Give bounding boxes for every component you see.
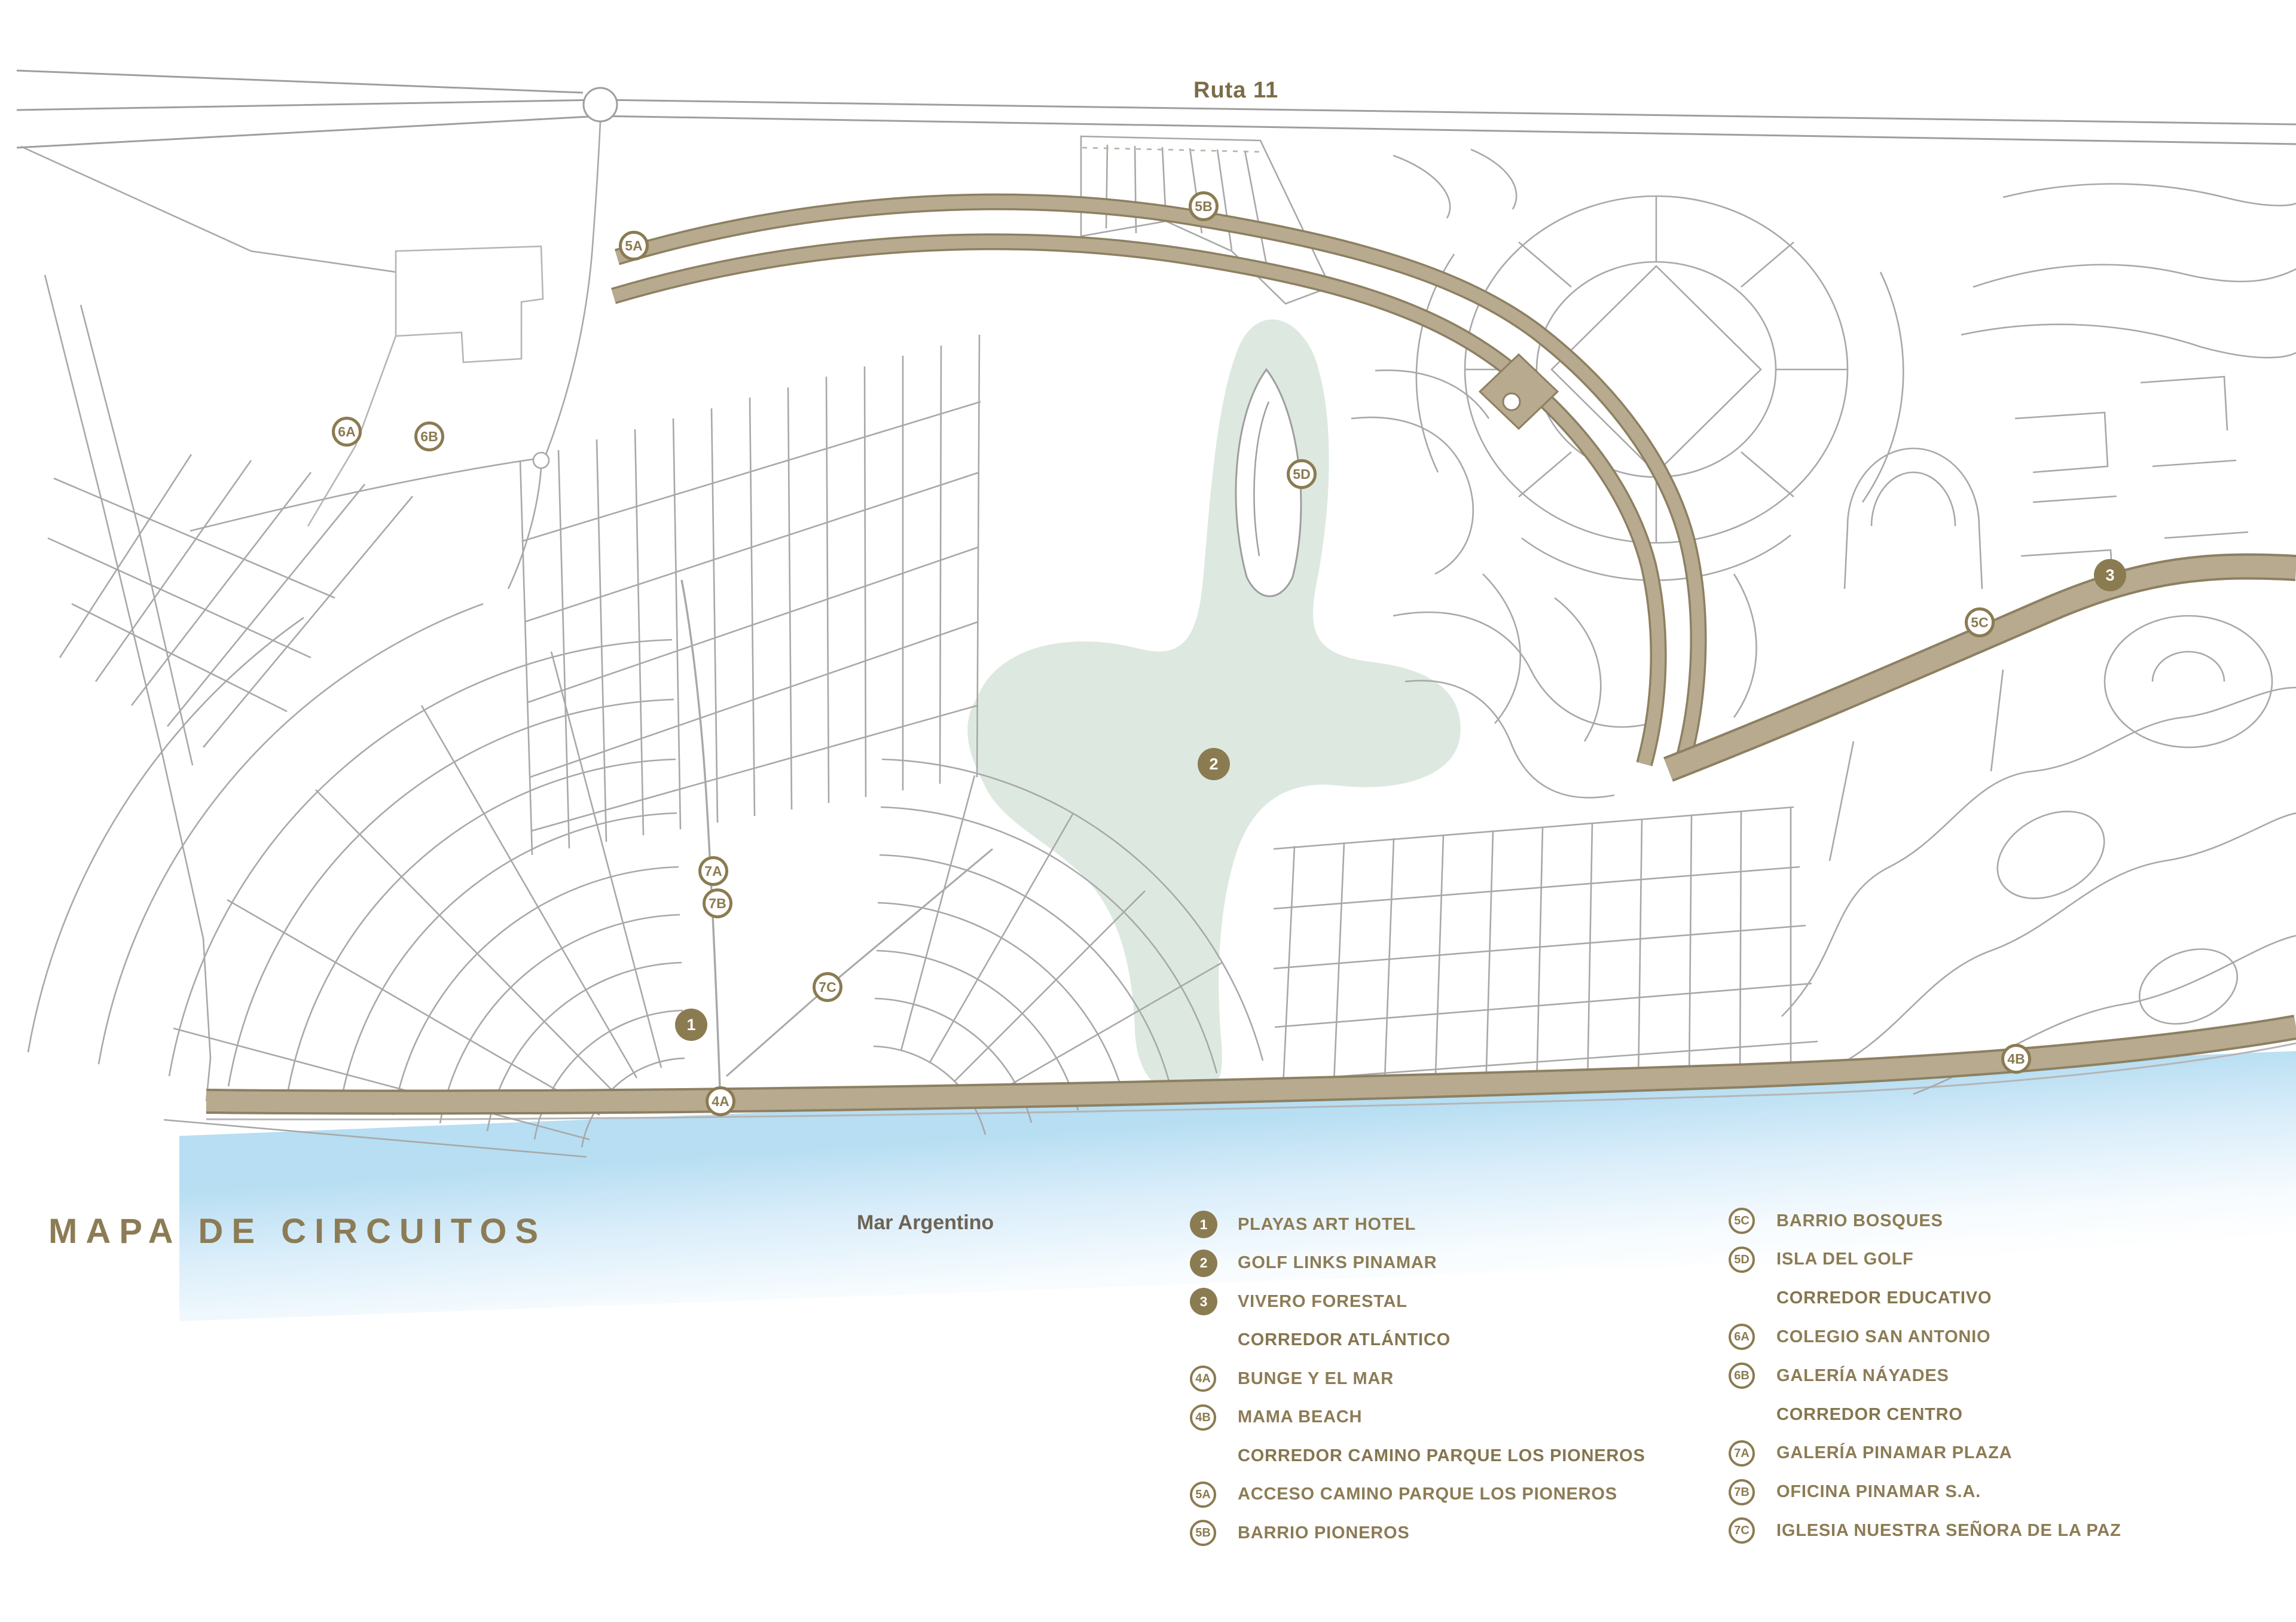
legend-item-5C: 5CBARRIO BOSQUES bbox=[1729, 1206, 1943, 1235]
legend-label: MAMA BEACH bbox=[1238, 1407, 1362, 1427]
legend-label: COLEGIO SAN ANTONIO bbox=[1776, 1327, 1990, 1347]
map-marker-7B[interactable]: 7B bbox=[703, 888, 732, 918]
legend-item-7B: 7BOFICINA PINAMAR S.A. bbox=[1729, 1478, 1981, 1507]
legend-label: VIVERO FORESTAL bbox=[1238, 1292, 1407, 1312]
legend-marker-7B: 7B bbox=[1729, 1479, 1755, 1505]
legend-label: PLAYAS ART HOTEL bbox=[1238, 1215, 1416, 1235]
legend-label: BUNGE Y EL MAR bbox=[1238, 1369, 1394, 1389]
map-marker-7C[interactable]: 7C bbox=[813, 972, 842, 1002]
legend-marker-6B: 6B bbox=[1729, 1363, 1755, 1389]
legend-label: CORREDOR ATLÁNTICO bbox=[1238, 1330, 1451, 1350]
legend-item-6A: 6ACOLEGIO SAN ANTONIO bbox=[1729, 1322, 1990, 1351]
legend-item-6B: 6BGALERÍA NÁYADES bbox=[1729, 1361, 1949, 1390]
legend-marker-1: 1 bbox=[1190, 1211, 1217, 1238]
legend-marker-7A: 7A bbox=[1729, 1440, 1755, 1467]
legend-marker-5A: 5A bbox=[1190, 1482, 1216, 1508]
legend-label: OFICINA PINAMAR S.A. bbox=[1776, 1482, 1981, 1502]
ruta-11-road bbox=[17, 71, 2296, 148]
legend-marker-7C: 7C bbox=[1729, 1517, 1755, 1544]
legend-header: CORREDOR CENTRO bbox=[1729, 1400, 1963, 1429]
legend-marker-5D: 5D bbox=[1729, 1247, 1755, 1273]
legend-item-1: 1PLAYAS ART HOTEL bbox=[1190, 1210, 1416, 1239]
map-marker-5B[interactable]: 5B bbox=[1189, 191, 1219, 221]
page-title: MAPA DE CIRCUITOS bbox=[48, 1211, 546, 1251]
legend-item-7A: 7AGALERÍA PINAMAR PLAZA bbox=[1729, 1439, 2012, 1468]
legend-item-7C: 7CIGLESIA NUESTRA SEÑORA DE LA PAZ bbox=[1729, 1516, 2121, 1545]
legend-label: BARRIO BOSQUES bbox=[1776, 1211, 1943, 1231]
map-marker-7A[interactable]: 7A bbox=[698, 856, 728, 886]
legend-header: CORREDOR ATLÁNTICO bbox=[1190, 1326, 1451, 1355]
legend-marker-5C: 5C bbox=[1729, 1208, 1755, 1234]
ruta-11-label: Ruta 11 bbox=[1193, 78, 1278, 103]
legend-header: CORREDOR EDUCATIVO bbox=[1729, 1284, 1992, 1313]
legend-item-5A: 5AACCESO CAMINO PARQUE LOS PIONEROS bbox=[1190, 1480, 1617, 1509]
legend-item-4B: 4BMAMA BEACH bbox=[1190, 1403, 1362, 1432]
legend-label: CORREDOR CAMINO PARQUE LOS PIONEROS bbox=[1238, 1446, 1645, 1466]
legend-marker-4B: 4B bbox=[1190, 1404, 1216, 1431]
legend-item-2: 2GOLF LINKS PINAMAR bbox=[1190, 1249, 1437, 1278]
legend-marker-5B: 5B bbox=[1190, 1520, 1216, 1546]
map-marker-1[interactable]: 1 bbox=[675, 1009, 707, 1041]
legend-label: GOLF LINKS PINAMAR bbox=[1238, 1253, 1437, 1273]
page: { "title": "MAPA DE CIRCUITOS", "sea_lab… bbox=[0, 0, 2296, 1622]
map-marker-5C[interactable]: 5C bbox=[1965, 607, 1995, 637]
legend-marker-6A: 6A bbox=[1729, 1324, 1755, 1350]
legend-label: GALERÍA PINAMAR PLAZA bbox=[1776, 1443, 2012, 1463]
street-map bbox=[0, 0, 2296, 1351]
map-marker-5D[interactable]: 5D bbox=[1287, 459, 1317, 489]
golf-course-area bbox=[967, 319, 1461, 1094]
legend-label: ISLA DEL GOLF bbox=[1776, 1250, 1914, 1269]
legend-item-4A: 4ABUNGE Y EL MAR bbox=[1190, 1364, 1394, 1393]
legend-label: ACCESO CAMINO PARQUE LOS PIONEROS bbox=[1238, 1484, 1617, 1504]
legend-label: GALERÍA NÁYADES bbox=[1776, 1366, 1949, 1386]
legend-marker-3: 3 bbox=[1190, 1288, 1217, 1315]
map-marker-4A[interactable]: 4A bbox=[706, 1086, 735, 1116]
sea-label: Mar Argentino bbox=[857, 1211, 994, 1235]
legend-label: BARRIO PIONEROS bbox=[1238, 1523, 1410, 1543]
legend-item-5D: 5DISLA DEL GOLF bbox=[1729, 1245, 1914, 1274]
legend-marker-2: 2 bbox=[1190, 1250, 1217, 1277]
map-marker-6A[interactable]: 6A bbox=[332, 417, 362, 447]
map-marker-2[interactable]: 2 bbox=[1198, 748, 1230, 780]
map-marker-4B[interactable]: 4B bbox=[2001, 1044, 2031, 1074]
map-marker-5A[interactable]: 5A bbox=[619, 231, 649, 261]
legend-header: CORREDOR CAMINO PARQUE LOS PIONEROS bbox=[1190, 1441, 1645, 1470]
map-canvas: Ruta 11 1234A4B5A5B5C5D6A6B7A7B7C bbox=[0, 0, 2296, 1351]
legend-label: CORREDOR CENTRO bbox=[1776, 1405, 1963, 1425]
legend-item-5B: 5BBARRIO PIONEROS bbox=[1190, 1519, 1410, 1547]
legend-item-3: 3VIVERO FORESTAL bbox=[1190, 1287, 1407, 1316]
map-marker-6B[interactable]: 6B bbox=[414, 421, 444, 451]
legend-label: CORREDOR EDUCATIVO bbox=[1776, 1288, 1992, 1308]
map-marker-3[interactable]: 3 bbox=[2094, 559, 2126, 591]
legend-marker-4A: 4A bbox=[1190, 1366, 1216, 1392]
legend-label: IGLESIA NUESTRA SEÑORA DE LA PAZ bbox=[1776, 1521, 2121, 1541]
